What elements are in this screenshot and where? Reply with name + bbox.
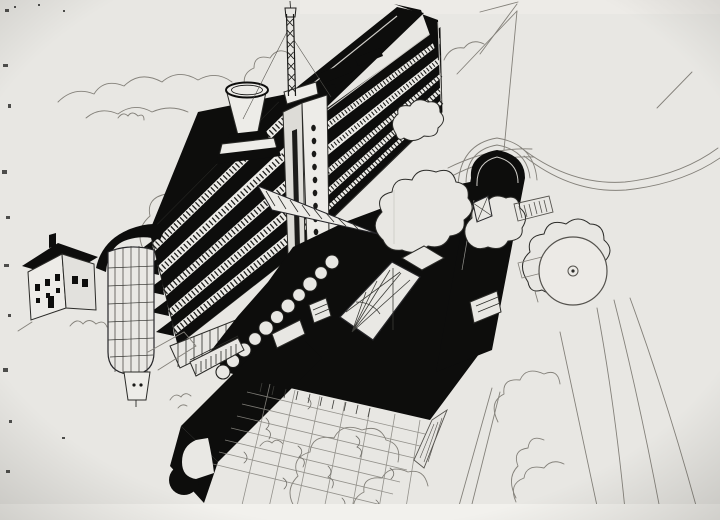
scan-vignette (0, 0, 720, 520)
scanned-drawing-page (0, 0, 720, 520)
architectural-perspective-drawing (0, 0, 720, 520)
